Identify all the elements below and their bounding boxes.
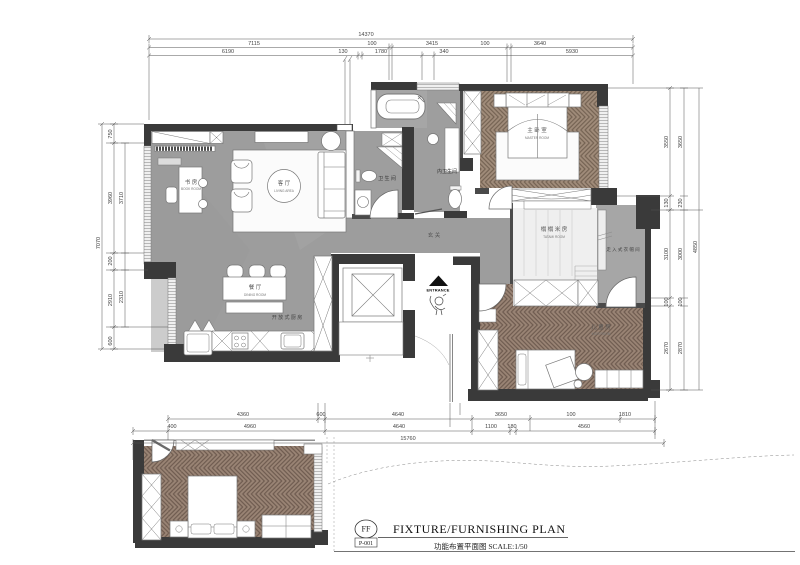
svg-text:榻 榻 米 房: 榻 榻 米 房 — [541, 225, 568, 233]
svg-text:340: 340 — [439, 49, 448, 55]
svg-text:开 放 式 厨 房: 开 放 式 厨 房 — [272, 314, 303, 321]
svg-text:3640: 3640 — [534, 41, 546, 47]
svg-text:3000: 3000 — [678, 248, 684, 260]
svg-text:4560: 4560 — [578, 424, 590, 430]
svg-text:餐 厅: 餐 厅 — [249, 283, 262, 291]
svg-text:3650: 3650 — [495, 412, 507, 418]
svg-text:2310: 2310 — [119, 291, 125, 303]
svg-text:7115: 7115 — [248, 41, 260, 47]
svg-text:P-001: P-001 — [359, 541, 373, 547]
svg-text:100: 100 — [664, 297, 670, 306]
svg-text:4960: 4960 — [244, 424, 256, 430]
svg-text:4360: 4360 — [237, 412, 249, 418]
svg-text:走 入 式 衣 帽 间: 走 入 式 衣 帽 间 — [606, 246, 640, 253]
svg-text:6190: 6190 — [222, 49, 234, 55]
svg-text:7070: 7070 — [96, 237, 102, 249]
svg-text:LIVING AREA: LIVING AREA — [274, 189, 295, 193]
svg-text:ENTRANCE: ENTRANCE — [426, 288, 449, 293]
svg-text:3960: 3960 — [108, 192, 114, 204]
svg-text:5930: 5930 — [566, 49, 578, 55]
svg-text:卫 生 间: 卫 生 间 — [378, 175, 396, 182]
svg-text:1100: 1100 — [485, 424, 497, 430]
svg-text:3550: 3550 — [664, 136, 670, 148]
svg-text:100: 100 — [480, 41, 489, 47]
svg-text:TATAMI ROOM: TATAMI ROOM — [543, 235, 565, 239]
svg-text:3100: 3100 — [664, 248, 670, 260]
svg-text:功能布置平面图 SCALE:1/50: 功能布置平面图 SCALE:1/50 — [434, 541, 528, 551]
svg-text:DINING ROOM: DINING ROOM — [244, 293, 266, 297]
svg-text:600: 600 — [108, 336, 114, 345]
svg-text:200: 200 — [108, 256, 114, 265]
svg-text:100: 100 — [566, 412, 575, 418]
svg-text:180: 180 — [507, 424, 516, 430]
svg-text:1810: 1810 — [619, 412, 631, 418]
svg-text:230: 230 — [678, 198, 684, 207]
svg-text:4640: 4640 — [392, 412, 404, 418]
svg-text:750: 750 — [108, 129, 114, 138]
svg-text:MASTER ROOM: MASTER ROOM — [525, 136, 549, 140]
svg-text:14370: 14370 — [358, 32, 373, 38]
svg-text:玄 关: 玄 关 — [428, 231, 441, 239]
svg-text:内卫生间: 内卫生间 — [437, 168, 457, 175]
svg-text:2910: 2910 — [108, 294, 114, 306]
svg-text:4640: 4640 — [393, 424, 405, 430]
svg-text:书 房: 书 房 — [185, 178, 198, 186]
svg-text:客 厅: 客 厅 — [278, 179, 291, 187]
svg-text:BOOK ROOM: BOOK ROOM — [181, 187, 201, 191]
svg-text:2670: 2670 — [664, 342, 670, 354]
svg-text:儿 童 房: 儿 童 房 — [591, 323, 611, 331]
svg-text:主 卧 室: 主 卧 室 — [527, 126, 547, 134]
svg-text:FIXTURE/FURNISHING PLAN: FIXTURE/FURNISHING PLAN — [393, 522, 566, 536]
svg-text:15760: 15760 — [400, 436, 415, 442]
svg-text:400: 400 — [167, 424, 176, 430]
svg-text:4850: 4850 — [693, 241, 699, 253]
svg-text:130: 130 — [664, 198, 670, 207]
svg-text:100: 100 — [678, 297, 684, 306]
svg-text:FF: FF — [362, 525, 371, 534]
svg-text:3710: 3710 — [119, 192, 125, 204]
svg-text:1780: 1780 — [375, 49, 387, 55]
svg-text:2870: 2870 — [678, 342, 684, 354]
svg-text:130: 130 — [338, 49, 347, 55]
svg-text:3650: 3650 — [678, 136, 684, 148]
svg-text:100: 100 — [367, 41, 376, 47]
svg-text:KID'S ROOM: KID'S ROOM — [592, 332, 611, 336]
svg-text:3415: 3415 — [426, 41, 438, 47]
